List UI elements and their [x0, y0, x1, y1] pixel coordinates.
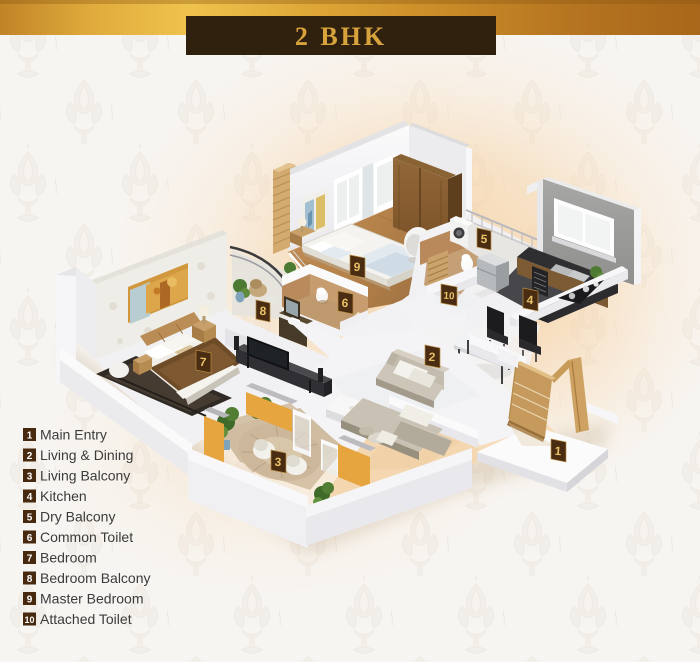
svg-text:4: 4 [27, 492, 33, 503]
svg-text:1: 1 [27, 431, 33, 442]
svg-text:Common Toilet: Common Toilet [40, 529, 133, 545]
svg-text:Attached Toilet: Attached Toilet [40, 611, 132, 627]
svg-text:3: 3 [27, 472, 33, 483]
svg-text:9: 9 [27, 595, 33, 606]
svg-text:Living Balcony: Living Balcony [40, 468, 130, 484]
svg-text:1: 1 [554, 444, 562, 458]
svg-text:Bedroom: Bedroom [40, 550, 97, 566]
svg-text:5: 5 [27, 513, 33, 524]
svg-text:2: 2 [27, 451, 33, 462]
svg-text:Bedroom Balcony: Bedroom Balcony [40, 570, 151, 586]
svg-text:2 BHK: 2 BHK [295, 22, 387, 51]
svg-text:10: 10 [24, 615, 34, 625]
svg-text:3: 3 [274, 455, 282, 469]
svg-text:2: 2 [428, 350, 436, 364]
svg-text:8: 8 [27, 574, 33, 585]
svg-text:10: 10 [443, 291, 455, 303]
svg-text:Main Entry: Main Entry [40, 427, 107, 443]
svg-text:6: 6 [341, 296, 349, 310]
svg-text:7: 7 [27, 554, 33, 565]
svg-text:7: 7 [199, 355, 207, 369]
svg-text:Living & Dining: Living & Dining [40, 447, 133, 463]
svg-text:8: 8 [259, 304, 267, 318]
svg-text:4: 4 [526, 293, 534, 307]
svg-text:Dry Balcony: Dry Balcony [40, 509, 115, 525]
svg-text:Kitchen: Kitchen [40, 488, 87, 504]
svg-text:6: 6 [27, 533, 33, 544]
svg-text:9: 9 [353, 260, 361, 274]
svg-text:5: 5 [480, 232, 488, 246]
svg-text:Master Bedroom: Master Bedroom [40, 591, 143, 607]
